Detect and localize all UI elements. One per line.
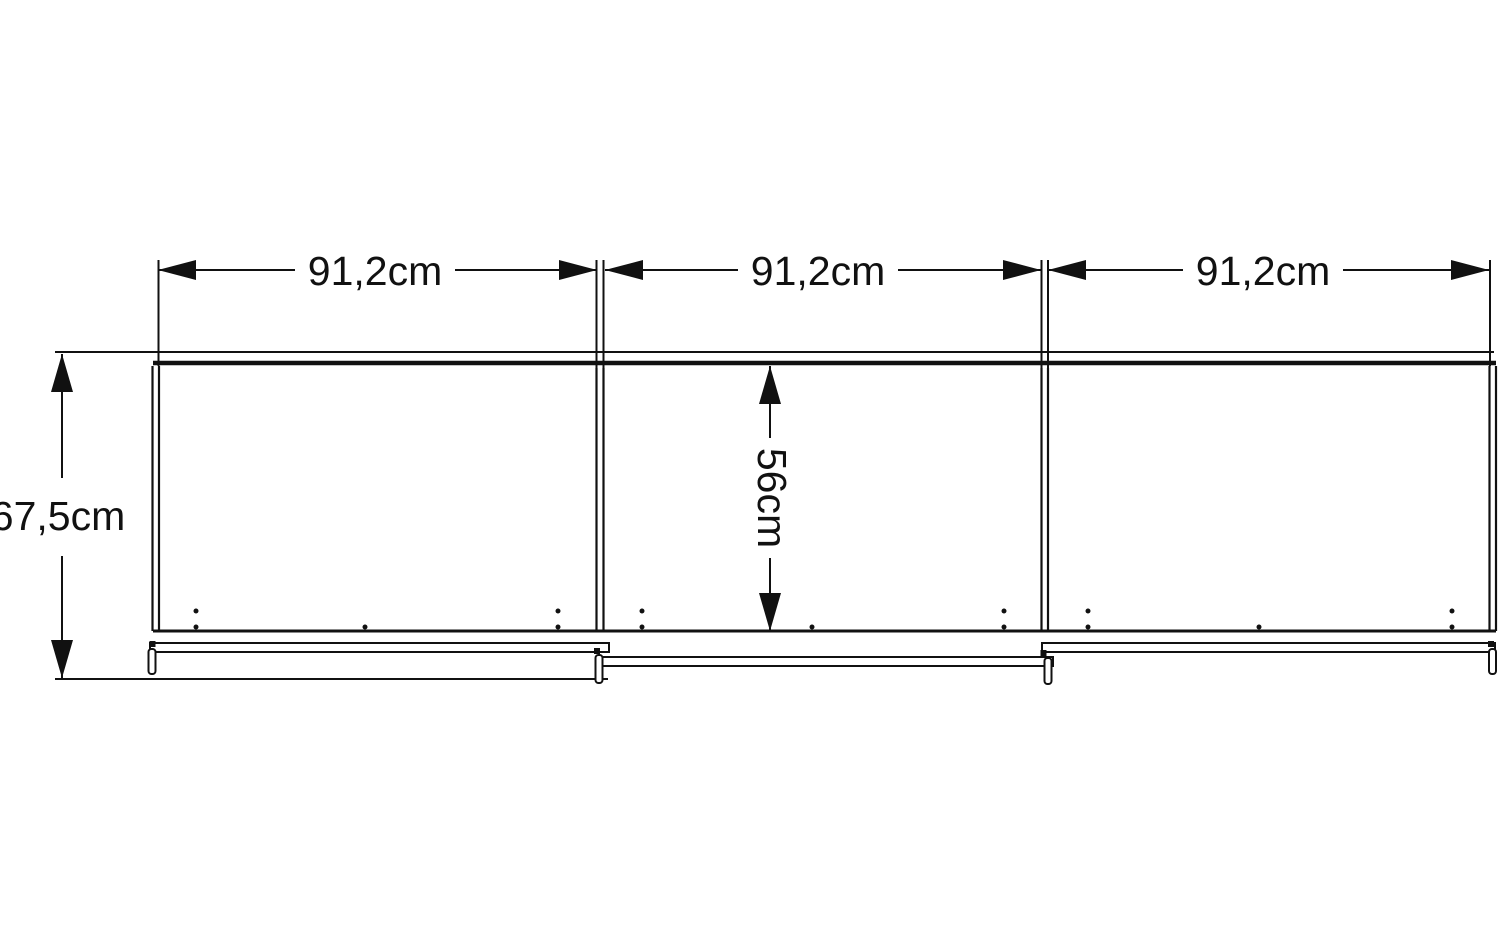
hole-dot bbox=[194, 609, 199, 614]
hole-dot bbox=[640, 625, 645, 630]
arrowhead-right-door-2 bbox=[1003, 260, 1041, 280]
right-door-rail bbox=[1042, 643, 1495, 652]
arrowhead-up-interior-height bbox=[759, 366, 781, 404]
technical-drawing-canvas: 91,2cm 91,2cm 91,2cm bbox=[0, 0, 1500, 938]
hole-dot bbox=[810, 625, 815, 630]
arrowhead-left-door-3 bbox=[1048, 260, 1086, 280]
dim-label-door-2: 91,2cm bbox=[751, 248, 885, 294]
hole-dot bbox=[1450, 609, 1455, 614]
wardrobe-dimension-diagram: 91,2cm 91,2cm 91,2cm bbox=[0, 0, 1500, 938]
arrowhead-left-door-1 bbox=[158, 260, 196, 280]
left-door-rail bbox=[150, 643, 609, 652]
rail-bracket bbox=[150, 641, 156, 647]
middle-door-rail bbox=[597, 657, 1053, 666]
arrowhead-left-door-2 bbox=[605, 260, 643, 280]
drill-holes bbox=[194, 609, 1455, 630]
hole-dot bbox=[1086, 609, 1091, 614]
arrowhead-right-door-1 bbox=[559, 260, 597, 280]
arrowhead-right-door-3 bbox=[1451, 260, 1489, 280]
hole-dot bbox=[1002, 625, 1007, 630]
rail-pin bbox=[596, 655, 603, 683]
door-rails bbox=[149, 641, 1497, 684]
arrowhead-up-overall-height bbox=[51, 354, 73, 392]
rail-pin bbox=[1045, 658, 1052, 684]
dim-label-interior-height: 56cm bbox=[749, 448, 795, 548]
rail-bracket bbox=[594, 648, 600, 654]
rail-pin bbox=[149, 649, 156, 674]
dim-label-overall-height: 67,5cm bbox=[0, 493, 125, 539]
arrowhead-down-overall-height bbox=[51, 640, 73, 678]
rail-bracket bbox=[1041, 650, 1047, 656]
hole-dot bbox=[640, 609, 645, 614]
rail-pin bbox=[1489, 649, 1496, 674]
hole-dot bbox=[1086, 625, 1091, 630]
dim-label-door-3: 91,2cm bbox=[1196, 248, 1330, 294]
hole-dot bbox=[1002, 609, 1007, 614]
arrowhead-down-interior-height bbox=[759, 593, 781, 631]
dim-label-door-1: 91,2cm bbox=[308, 248, 442, 294]
hole-dot bbox=[1257, 625, 1262, 630]
rail-bracket bbox=[1488, 641, 1494, 647]
hole-dot bbox=[556, 609, 561, 614]
hole-dot bbox=[194, 625, 199, 630]
cabinet-panels bbox=[153, 366, 1497, 631]
hole-dot bbox=[363, 625, 368, 630]
hole-dot bbox=[556, 625, 561, 630]
hole-dot bbox=[1450, 625, 1455, 630]
